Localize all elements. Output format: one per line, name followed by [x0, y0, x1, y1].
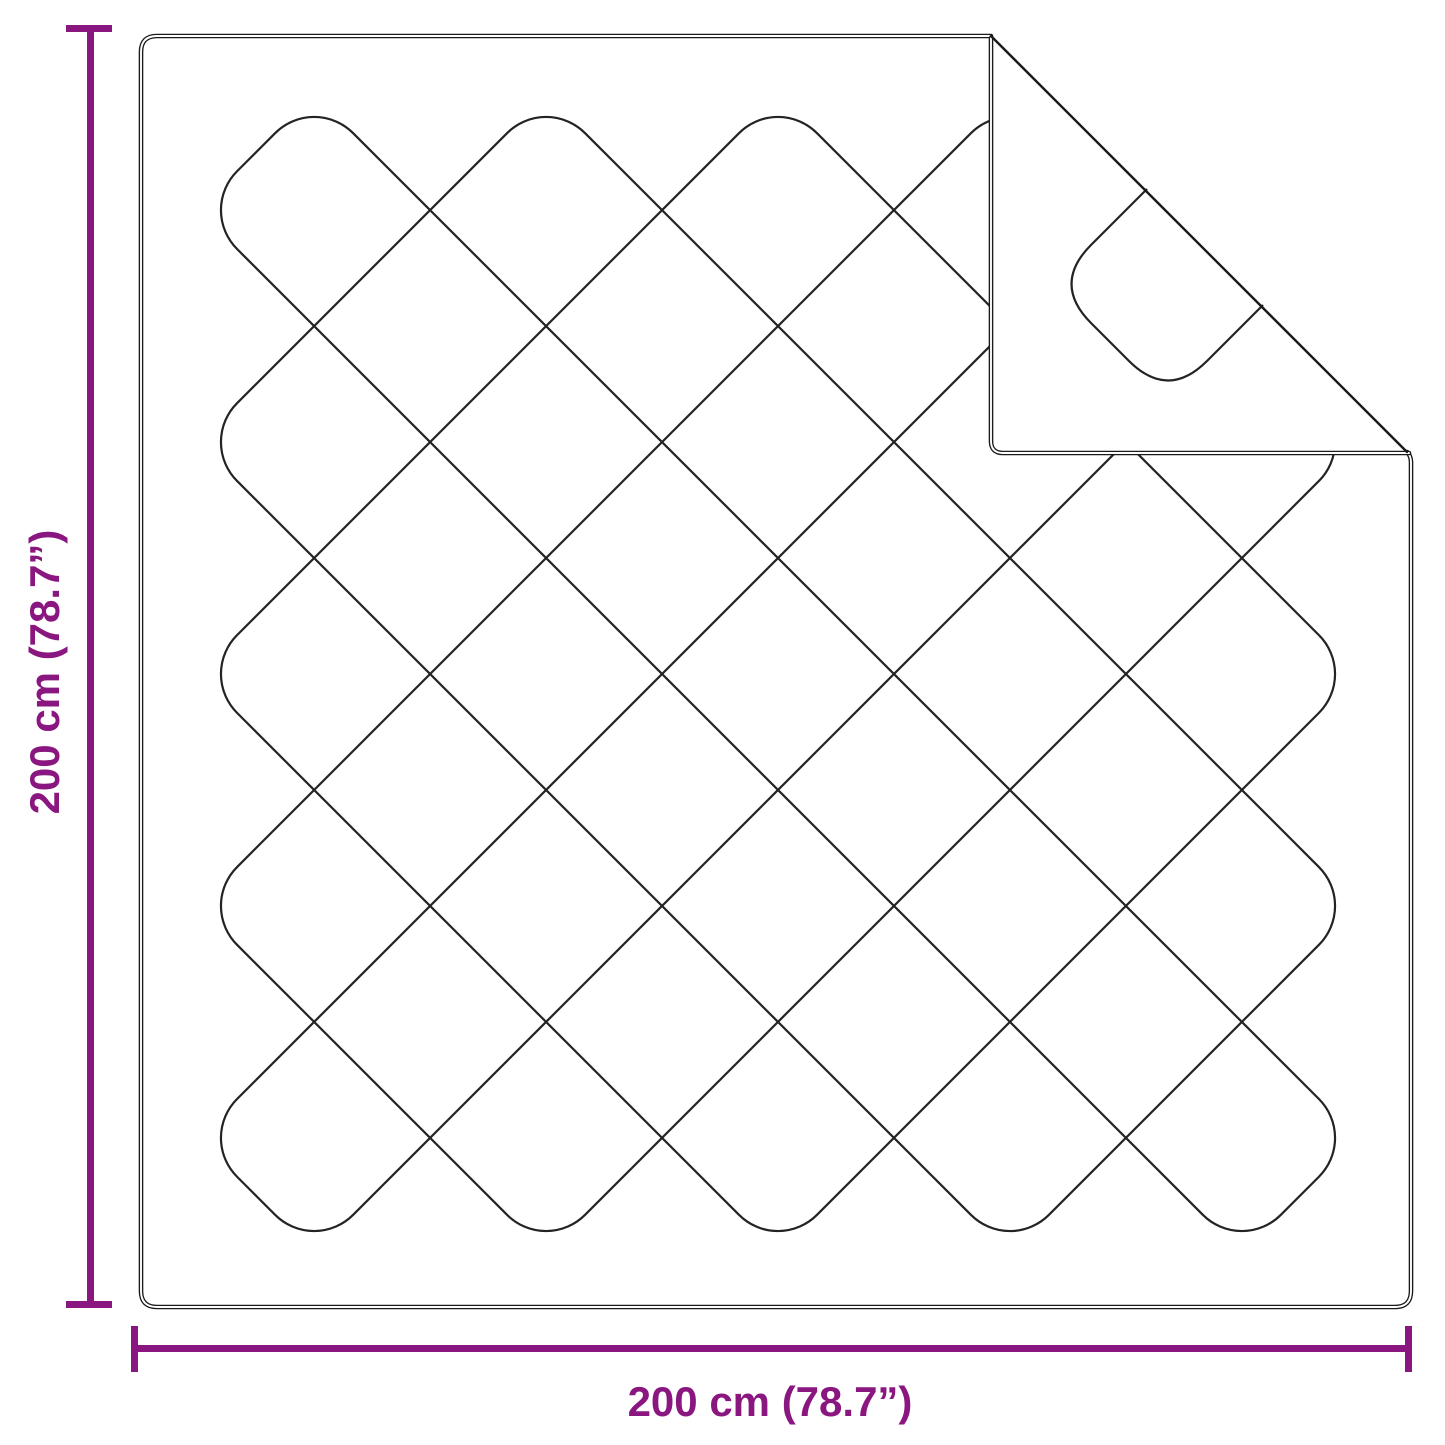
fold-crease-line	[991, 36, 1407, 452]
width-dimension: 200 cm (78.7”)	[131, 1326, 1412, 1425]
width-dimension-line	[131, 1345, 1412, 1352]
product-dimension-image: 200 cm (78.7”) 200 cm (78.7”)	[0, 0, 1445, 1445]
width-dimension-right-cap	[1405, 1326, 1412, 1372]
quilt-pattern	[0, 0, 1445, 1445]
width-dimension-left-cap	[131, 1326, 138, 1372]
blanket-outline	[141, 36, 1411, 1307]
width-dimension-label: 200 cm (78.7”)	[628, 1378, 913, 1425]
dimension-diagram-svg: 200 cm (78.7”) 200 cm (78.7”)	[0, 0, 1445, 1445]
height-dimension-label: 200 cm (78.7”)	[21, 530, 68, 815]
height-dimension: 200 cm (78.7”)	[21, 25, 112, 1308]
height-dimension-top-cap	[66, 25, 112, 32]
height-dimension-bottom-cap	[66, 1301, 112, 1308]
blanket-outline-inner	[141, 36, 1411, 1307]
height-dimension-line	[87, 25, 94, 1308]
flap-quilt-pattern	[1072, 189, 1264, 381]
